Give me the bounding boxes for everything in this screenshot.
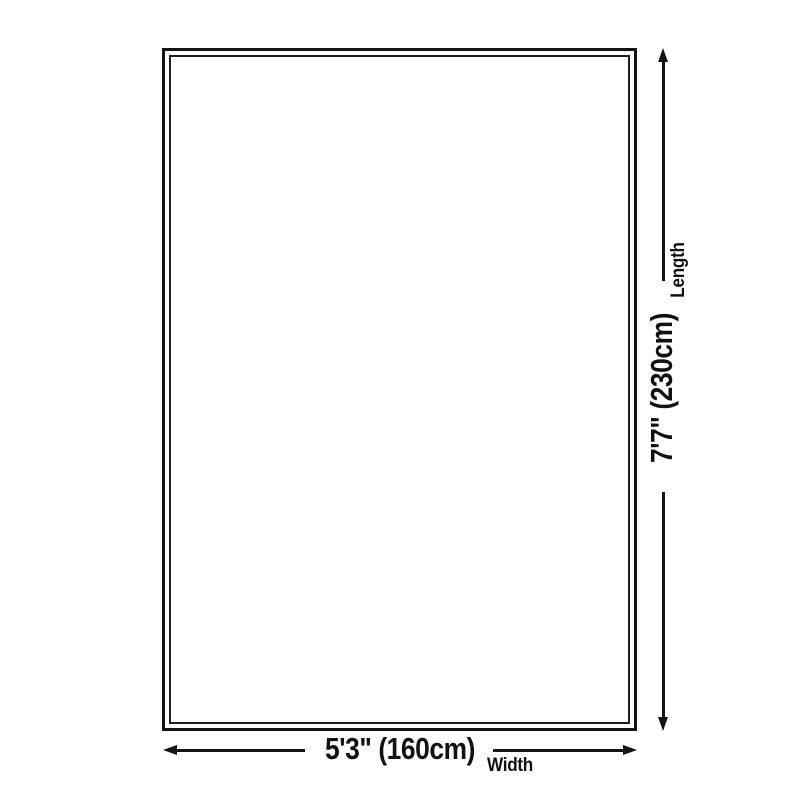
- arrow-down-icon: [658, 717, 668, 731]
- length-dimension-line-bottom: [662, 492, 665, 718]
- length-label: Length: [668, 242, 690, 297]
- rug-inner-outline: [169, 55, 630, 724]
- size-diagram: Length 7'7" (230cm) 5'3" (160cm) Width: [0, 0, 800, 800]
- length-dimension-line-top: [662, 60, 665, 281]
- arrow-right-icon: [623, 745, 637, 755]
- width-label: Width: [487, 755, 533, 777]
- width-dimension-line-right: [493, 749, 624, 752]
- width-dimension-line-left: [175, 749, 305, 752]
- rug-outline: [162, 48, 637, 731]
- width-value: 5'3" (160cm): [325, 731, 475, 767]
- length-value: 7'7" (230cm): [644, 313, 680, 463]
